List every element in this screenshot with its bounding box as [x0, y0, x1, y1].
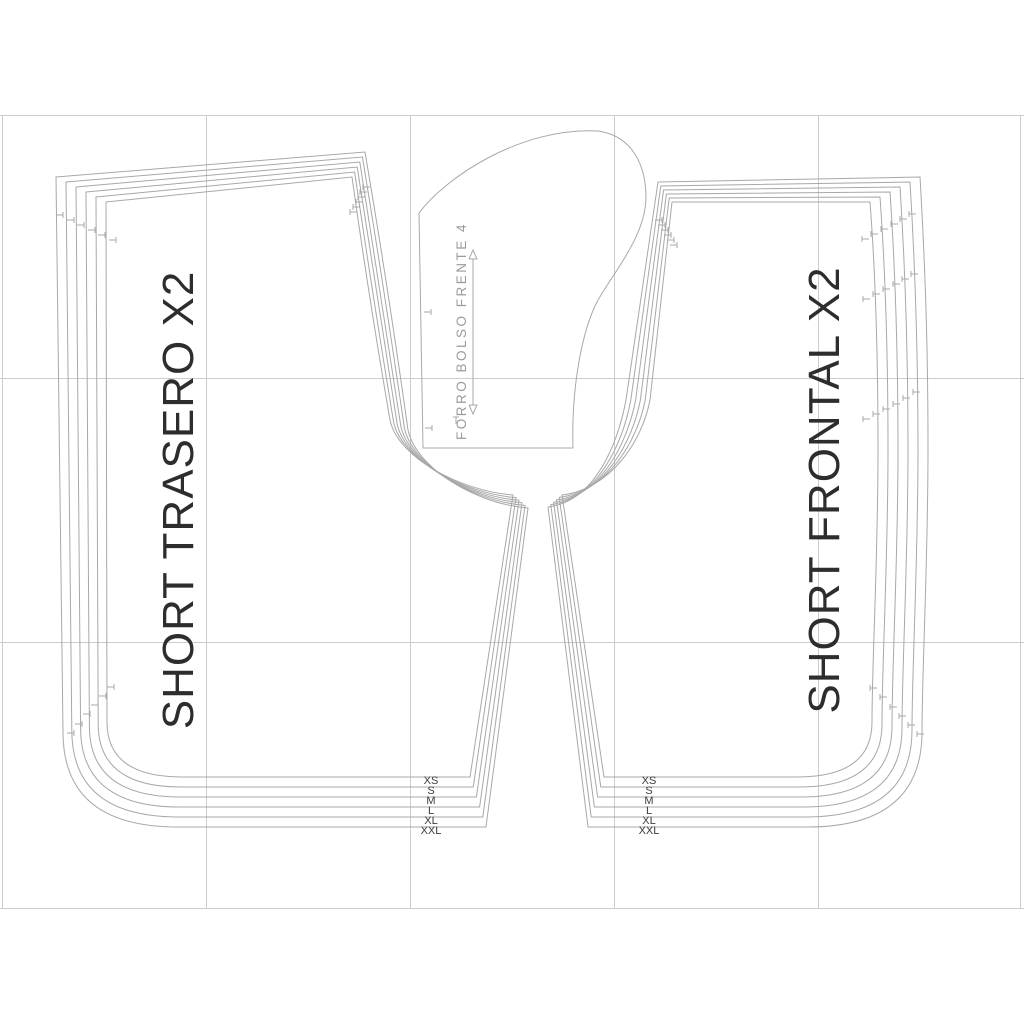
notch-mark [913, 389, 920, 395]
back-piece-label: SHORT TRASERO X2 [154, 271, 203, 730]
notch-mark [902, 276, 909, 282]
arrowhead-down-icon [469, 405, 477, 414]
notch-mark [900, 216, 907, 222]
pattern-sheet: SHORT TRASERO X2 SHORT FRONTAL X2 FORRO … [0, 0, 1024, 1024]
notch-mark [873, 291, 880, 297]
notch-mark [109, 237, 116, 243]
notch-mark [908, 722, 915, 728]
pattern-canvas: SHORT TRASERO X2 SHORT FRONTAL X2 FORRO … [0, 0, 1024, 1024]
size-label: XXL [639, 825, 660, 837]
notch-mark [883, 406, 890, 412]
notch-mark [424, 309, 431, 315]
grainline-arrow [469, 250, 477, 414]
notch-mark [917, 731, 924, 737]
notch-mark [873, 411, 880, 417]
notch-mark [909, 211, 916, 217]
size-labels-back: XS S M L XL XXL [421, 775, 442, 837]
notch-mark [67, 730, 74, 736]
notch-mark [98, 232, 105, 238]
front-piece-outline-size-3 [554, 187, 908, 807]
front-piece-outline-size-4 [551, 182, 918, 817]
notch-mark [88, 227, 95, 233]
notch-mark [99, 693, 106, 699]
notch-mark [883, 286, 890, 292]
notch-mark [425, 425, 432, 431]
notch-mark [893, 401, 900, 407]
front-piece-label: SHORT FRONTAL X2 [800, 266, 849, 713]
notch-mark [77, 222, 84, 228]
notch-mark [862, 236, 869, 242]
front-piece-outline-size-5 [548, 177, 928, 827]
notch-mark [863, 296, 870, 302]
front-piece-nested-outlines [548, 177, 928, 827]
notch-mark [56, 212, 63, 218]
size-labels-front: XS S M L XL XXL [639, 775, 660, 837]
notch-mark [880, 694, 887, 700]
notch-mark [91, 702, 98, 708]
notch-mark [890, 704, 897, 710]
pocket-piece-label: FORRO BOLSO FRENTE 4 [454, 222, 469, 440]
notch-mark [870, 685, 877, 691]
notch-mark [893, 281, 900, 287]
arrowhead-up-icon [469, 250, 477, 259]
size-label: XXL [421, 825, 442, 837]
notch-mark [107, 684, 114, 690]
notch-mark [903, 395, 910, 401]
notch-mark [67, 217, 74, 223]
notch-mark [863, 416, 870, 422]
